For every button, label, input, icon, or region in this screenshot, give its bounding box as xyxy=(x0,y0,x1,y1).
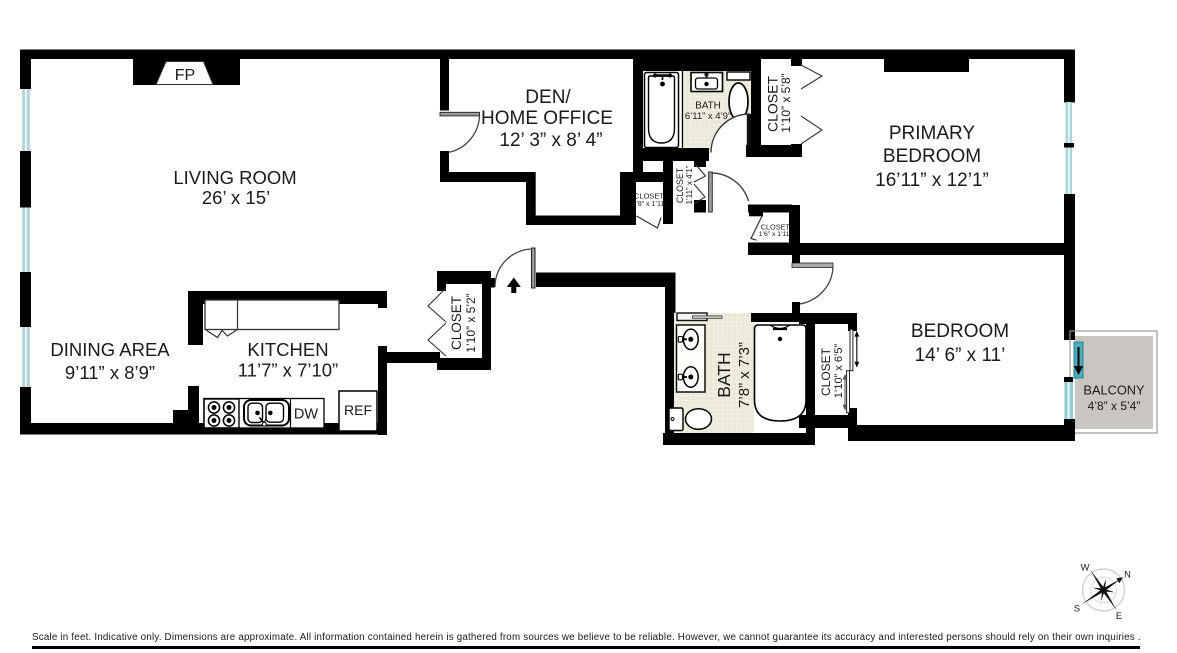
svg-text:CLOSET: CLOSET xyxy=(634,192,664,201)
svg-text:26’ x 15’: 26’ x 15’ xyxy=(202,187,270,208)
svg-text:1’10” x 6’5”: 1’10” x 6’5” xyxy=(833,343,845,398)
svg-text:CLOSET: CLOSET xyxy=(449,296,464,350)
svg-text:CLOSET: CLOSET xyxy=(675,167,685,203)
svg-text:4’8” x 5’4”: 4’8” x 5’4” xyxy=(1088,399,1141,413)
svg-text:LIVING ROOM: LIVING ROOM xyxy=(173,167,296,188)
svg-text:DW: DW xyxy=(294,407,318,423)
svg-text:12’ 3” x 8’ 4”: 12’ 3” x 8’ 4” xyxy=(499,130,602,151)
svg-text:HOME OFFICE: HOME OFFICE xyxy=(481,108,613,129)
svg-text:E: E xyxy=(1116,611,1122,621)
svg-text:9’11” x 8’9”: 9’11” x 8’9” xyxy=(65,362,155,383)
svg-text:W: W xyxy=(1081,563,1090,573)
svg-text:CLOSET: CLOSET xyxy=(819,347,833,396)
svg-text:1’10” x 5’2”: 1’10” x 5’2” xyxy=(464,293,478,352)
svg-text:1’10” x 5’8”: 1’10” x 5’8” xyxy=(779,73,793,132)
svg-text:PRIMARY: PRIMARY xyxy=(889,123,976,144)
svg-text:N: N xyxy=(1124,570,1131,580)
svg-text:11’7” x 7’10”: 11’7” x 7’10” xyxy=(238,360,338,381)
svg-text:S: S xyxy=(1074,604,1080,614)
svg-text:BEDROOM: BEDROOM xyxy=(883,146,981,167)
svg-text:BALCONY: BALCONY xyxy=(1083,383,1145,398)
svg-text:14’ 6” x 11’: 14’ 6” x 11’ xyxy=(915,345,1006,366)
svg-text:DEN/: DEN/ xyxy=(525,87,571,108)
svg-text:1’11” x 4’1”: 1’11” x 4’1” xyxy=(685,165,694,204)
svg-text:1’8” x 1’11”: 1’8” x 1’11” xyxy=(632,201,667,208)
svg-text:BATH: BATH xyxy=(714,352,734,397)
svg-text:KITCHEN: KITCHEN xyxy=(247,339,328,360)
svg-text:7’8” x 7’3”: 7’8” x 7’3” xyxy=(736,342,753,408)
svg-text:6’11” x 4’9”: 6’11” x 4’9” xyxy=(685,111,731,122)
svg-text:Scale in feet. Indicative only: Scale in feet. Indicative only. Dimensio… xyxy=(32,632,1141,643)
svg-text:1’6” x 1’11”: 1’6” x 1’11” xyxy=(759,231,793,238)
svg-text:REF: REF xyxy=(344,402,372,418)
svg-text:16’11” x 12’1”: 16’11” x 12’1” xyxy=(875,170,989,191)
svg-text:BEDROOM: BEDROOM xyxy=(911,321,1009,342)
svg-text:DINING AREA: DINING AREA xyxy=(50,339,170,360)
svg-text:FP: FP xyxy=(175,67,195,84)
